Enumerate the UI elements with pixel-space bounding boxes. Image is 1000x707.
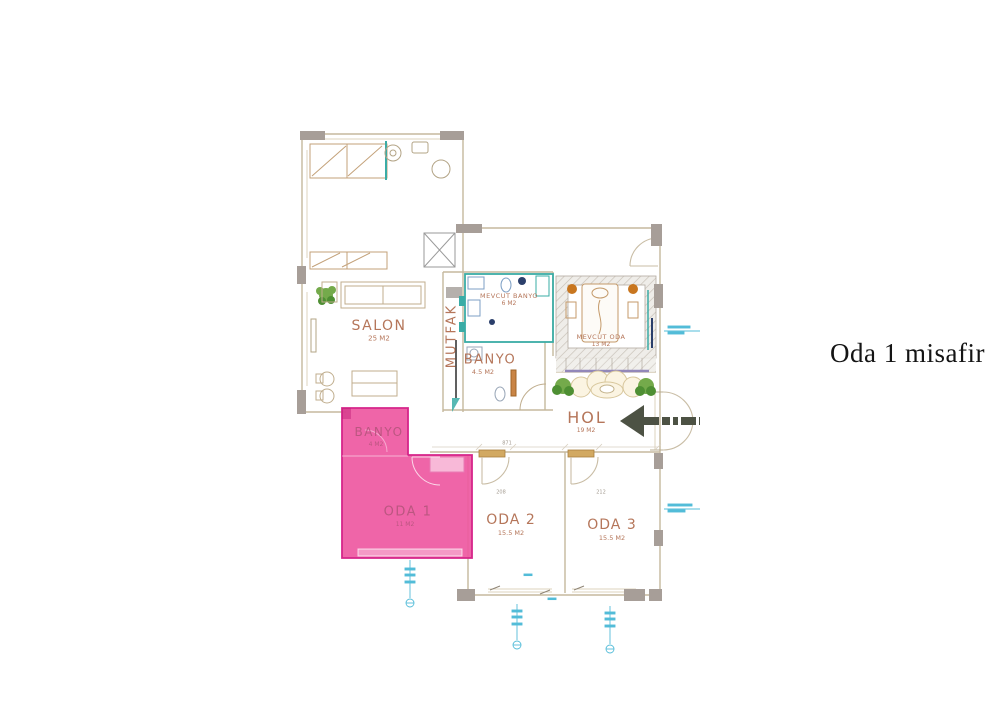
- room-label-mutfak: MUTFAK: [446, 304, 459, 368]
- mevcut-banyo-room: [465, 274, 553, 342]
- room-area-oda-1: 11 M2: [396, 522, 415, 528]
- room-label-hol: HOL: [567, 410, 607, 426]
- bedroom-furniture: [310, 141, 455, 269]
- room-area-salon: 25 M2: [368, 336, 390, 343]
- dimension-label: 871: [502, 442, 512, 447]
- room-area-oda-3: 15.5 M2: [599, 535, 625, 542]
- salon-furniture: [311, 282, 425, 403]
- dimension-label: 212: [596, 491, 606, 496]
- dimension-ticks: [432, 444, 661, 450]
- room-label-oda-3: ODA 3: [587, 518, 637, 532]
- plant-icon: [552, 378, 574, 396]
- floor-plan-page: SALON 25 M2 MUTFAK BANYO 4.5 M2 MEVCUT B…: [0, 0, 1000, 707]
- room-label-mevcut-oda: MEVCUT ODA: [577, 334, 626, 341]
- room-label-salon: SALON: [351, 319, 406, 333]
- room-area-hol: 19 M2: [577, 428, 596, 434]
- room-label-mevcut-banyo: MEVCUT BANYO: [480, 293, 538, 300]
- hol-furniture: [552, 371, 656, 398]
- room-area-banyo: 4.5 M2: [472, 369, 494, 376]
- room-area-mevcut-banyo: 6 M2: [502, 301, 517, 307]
- room-label-banyo: BANYO: [464, 354, 517, 367]
- room-area-oda-2: 15.5 M2: [498, 530, 524, 537]
- room-label-banyo-highlighted: BANYO: [354, 426, 403, 438]
- dimension-label: 208: [496, 491, 506, 496]
- room-label-oda-2: ODA 2: [486, 513, 536, 527]
- caption-oda-1-misafir: Oda 1 misafir: [830, 338, 985, 369]
- room-label-oda-1: ODA 1: [384, 506, 433, 519]
- room-area-banyo-highlighted: 4 M2: [369, 442, 384, 448]
- room-area-mevcut-oda: 13 M2: [592, 342, 611, 348]
